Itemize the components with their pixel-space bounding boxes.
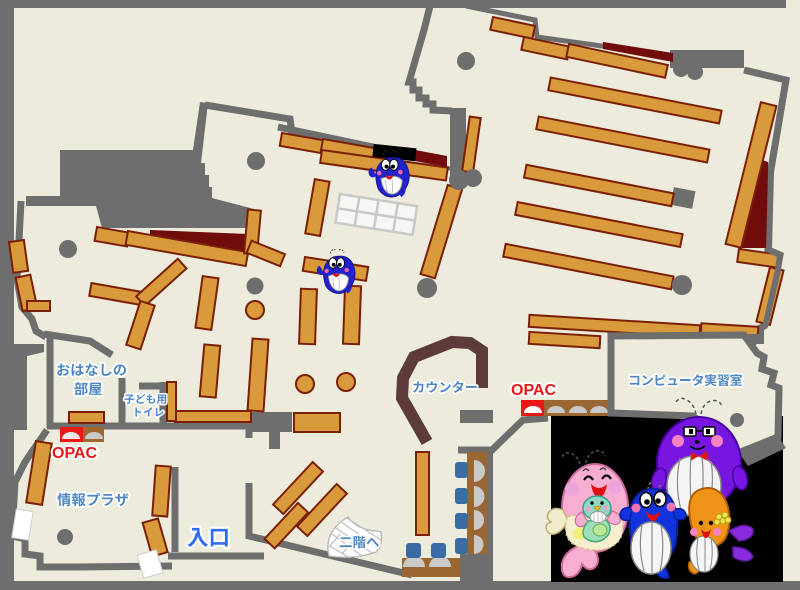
svg-text:OPAC: OPAC — [52, 445, 97, 462]
svg-text:OPAC: OPAC — [511, 382, 556, 399]
